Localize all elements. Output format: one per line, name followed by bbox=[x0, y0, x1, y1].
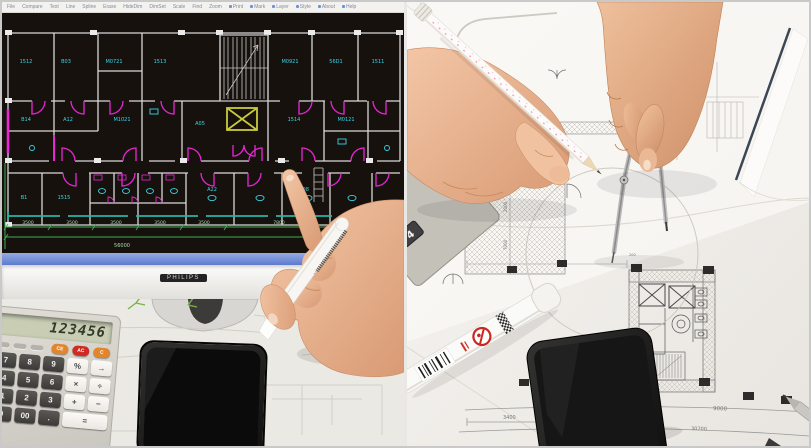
monitor-bezel: PHILIPS bbox=[2, 265, 404, 299]
cad-toolbar: File Compare Text Line Spline Erase Hide… bbox=[2, 2, 404, 13]
sheet-border-line bbox=[736, 28, 790, 180]
dimension-label: 7800 bbox=[273, 220, 285, 226]
cad-floorplan: 1512 B03 M0721 1513 M0921 56D1 1511 B14 … bbox=[2, 13, 404, 253]
room-label: M0921 bbox=[281, 59, 298, 65]
annotation-text: 200 bbox=[629, 253, 636, 257]
dimension-label: 3500 bbox=[198, 220, 210, 226]
room-label: B03 bbox=[61, 59, 71, 65]
memory-key[interactable] bbox=[2, 341, 10, 347]
room-label: M1021 bbox=[113, 117, 130, 123]
blueprint-dimensions: 3400 9000 30700 2000 7000 200 bbox=[503, 201, 728, 432]
dimension-lines bbox=[459, 406, 809, 436]
digit-key[interactable]: 4 bbox=[2, 369, 15, 386]
digit-key[interactable]: . bbox=[38, 410, 60, 427]
right-photo-drafting: 3400 9000 30700 2000 7000 200 0 0 bbox=[407, 2, 809, 446]
core-stairs bbox=[653, 352, 685, 380]
paper-background bbox=[407, 2, 809, 446]
room-label: B08 bbox=[299, 187, 309, 193]
north-arrow-symbol bbox=[765, 438, 781, 446]
dimension-label: 3500 bbox=[66, 220, 78, 226]
smartphone-screen bbox=[533, 334, 665, 446]
marker-pen bbox=[407, 280, 569, 404]
toolbar-item[interactable]: HideDim bbox=[123, 5, 142, 10]
blueprint-plan bbox=[421, 38, 809, 436]
room-label: 56D1 bbox=[329, 59, 342, 65]
toolbar-item[interactable]: Compare bbox=[22, 5, 43, 10]
room-label: M0721 bbox=[105, 59, 122, 65]
silver-pen-tip bbox=[780, 391, 809, 428]
total-dimension-label: 56000 bbox=[114, 243, 130, 249]
marker-barcode bbox=[414, 348, 455, 382]
room-label: 1514 bbox=[288, 117, 301, 123]
dim-text: 9000 bbox=[713, 406, 728, 413]
compass-handle bbox=[642, 58, 650, 80]
fingertip bbox=[549, 166, 569, 182]
toolbar-item-with-icon[interactable]: Mark bbox=[250, 5, 265, 10]
dimension-label: 3500 bbox=[110, 220, 122, 226]
screen-corner-widgets[interactable] bbox=[358, 250, 404, 265]
digit-key[interactable]: 6 bbox=[41, 374, 63, 391]
memory-key[interactable] bbox=[13, 343, 26, 349]
room-label: 1513 bbox=[154, 59, 167, 65]
marker-logo bbox=[470, 325, 493, 348]
toolbar-item[interactable]: File bbox=[7, 5, 15, 10]
drafting-compass bbox=[594, 54, 684, 270]
operator-key[interactable]: ÷ bbox=[89, 378, 111, 395]
room-label: B1 bbox=[21, 195, 28, 201]
room-label: B14 bbox=[21, 117, 31, 123]
toolbar-item[interactable]: Spline bbox=[82, 5, 96, 10]
digit-key[interactable]: 1 bbox=[2, 387, 14, 404]
toolbar-item[interactable]: Erase bbox=[103, 5, 116, 10]
operator-key[interactable]: × bbox=[65, 376, 87, 393]
compass-hinge bbox=[639, 79, 654, 94]
smartphone-screen bbox=[143, 347, 261, 446]
smartphone-right bbox=[519, 323, 690, 446]
pencil-circle bbox=[526, 168, 698, 340]
toilet-stalls bbox=[695, 288, 707, 338]
operator-key[interactable]: → bbox=[90, 360, 112, 377]
toolbar-item-with-icon[interactable]: Style bbox=[296, 5, 311, 10]
marker-checker-ring bbox=[495, 312, 514, 335]
drafting-scene: 3400 9000 30700 2000 7000 200 0 0 bbox=[407, 2, 809, 446]
compass-lead bbox=[666, 222, 667, 231]
room-label: 1511 bbox=[372, 59, 385, 65]
knuckle-creases bbox=[607, 92, 628, 150]
index-finger bbox=[631, 102, 668, 162]
calculator-display-value: 123456 bbox=[49, 320, 107, 341]
digit-key[interactable]: 2 bbox=[15, 389, 37, 406]
hatched-room bbox=[465, 170, 565, 274]
monitor-brand-logo: PHILIPS bbox=[160, 274, 207, 282]
memory-key[interactable] bbox=[30, 344, 43, 350]
toolbar-item[interactable]: DimSet bbox=[149, 5, 165, 10]
white-pencil bbox=[407, 2, 607, 181]
widget-icon[interactable] bbox=[363, 256, 367, 260]
room-label: A22 bbox=[207, 187, 217, 193]
dim-text-vertical: 2000 bbox=[503, 201, 508, 212]
toolbar-item-with-icon[interactable]: About bbox=[318, 5, 335, 10]
room-label: 1512 bbox=[20, 59, 33, 65]
pencil-tip bbox=[597, 170, 603, 175]
toolbar-item-with-icon[interactable]: Help bbox=[342, 5, 356, 10]
screen-background bbox=[2, 13, 404, 253]
paper-fold-lines bbox=[407, 2, 809, 446]
compass-hand bbox=[597, 2, 723, 198]
building-core bbox=[629, 270, 715, 392]
pencil-eraser bbox=[407, 2, 423, 12]
calc-key[interactable]: 4 bbox=[407, 229, 417, 242]
fingertip bbox=[639, 148, 657, 172]
faint-upper-lines bbox=[662, 38, 759, 162]
curled-sheet-edge bbox=[736, 28, 809, 201]
room-label: A05 bbox=[195, 121, 205, 127]
digit-key[interactable]: 7 bbox=[2, 352, 17, 369]
photo-collage: File Compare Text Line Spline Erase Hide… bbox=[0, 0, 811, 448]
elevator-shaft bbox=[639, 284, 695, 308]
toolbar-item[interactable]: Zoom bbox=[209, 5, 222, 10]
digit-key[interactable]: 8 bbox=[19, 354, 41, 371]
top-sheet bbox=[407, 2, 809, 342]
digit-key[interactable]: 9 bbox=[42, 356, 64, 373]
room-label: 1515 bbox=[58, 195, 71, 201]
toolbar-item-with-icon[interactable]: Layer bbox=[272, 5, 289, 10]
toolbar-item[interactable]: Text bbox=[50, 5, 59, 10]
operator-key[interactable]: % bbox=[66, 358, 88, 375]
dim-text: 30700 bbox=[691, 426, 707, 433]
operator-key[interactable]: − bbox=[87, 396, 109, 413]
ac-key[interactable]: AC bbox=[72, 345, 90, 356]
left-photo-cad-monitor: File Compare Text Line Spline Erase Hide… bbox=[2, 2, 404, 446]
room-label: A12 bbox=[63, 117, 73, 123]
toolbar-item[interactable]: Line bbox=[66, 5, 75, 10]
toolbar-item[interactable]: Find bbox=[192, 5, 202, 10]
digit-key[interactable]: 3 bbox=[39, 392, 61, 409]
index-finger bbox=[515, 122, 569, 185]
taskbar[interactable] bbox=[2, 253, 320, 265]
digit-key[interactable]: 0 bbox=[2, 405, 12, 422]
smartphone bbox=[136, 340, 268, 446]
calculator-corner: 0 0 1 4 7 bbox=[407, 127, 502, 295]
widget-icon[interactable] bbox=[370, 256, 374, 260]
toolbar-item[interactable]: Scale bbox=[173, 5, 186, 10]
door-arc bbox=[567, 184, 581, 198]
dimension-label: 3500 bbox=[154, 220, 166, 226]
digit-key[interactable]: 5 bbox=[17, 372, 39, 389]
fingernail bbox=[643, 160, 651, 171]
compass-needle bbox=[612, 252, 614, 263]
room-label: M0121 bbox=[337, 117, 354, 123]
calculator-keypad: 7 8 9 % → 4 5 6 × ÷ 1 2 3 + − 0 00 . = bbox=[2, 352, 110, 431]
calculator: 123456 CE AC C 7 8 9 % → 4 5 6 × bbox=[2, 305, 122, 446]
dim-text-vertical: 7000 bbox=[503, 239, 508, 250]
operator-key[interactable]: + bbox=[63, 394, 85, 411]
thumb bbox=[619, 100, 650, 144]
toolbar-item-with-icon[interactable]: Print bbox=[229, 5, 243, 10]
monitor-screen: 1512 B03 M0721 1513 M0921 56D1 1511 B14 … bbox=[2, 13, 404, 265]
pencil-pink-pattern bbox=[433, 22, 584, 159]
digit-key[interactable]: 00 bbox=[14, 407, 36, 424]
pencil-hand bbox=[407, 48, 577, 222]
dim-text: 3400 bbox=[503, 415, 516, 421]
column-markers bbox=[421, 165, 792, 404]
widget-icon[interactable] bbox=[377, 256, 381, 260]
equals-key[interactable]: = bbox=[62, 412, 108, 431]
ce-key[interactable]: CE bbox=[51, 343, 69, 354]
hatched-wall-band bbox=[529, 122, 621, 134]
c-key[interactable]: C bbox=[93, 347, 111, 358]
dimension-label: 3500 bbox=[22, 220, 34, 226]
